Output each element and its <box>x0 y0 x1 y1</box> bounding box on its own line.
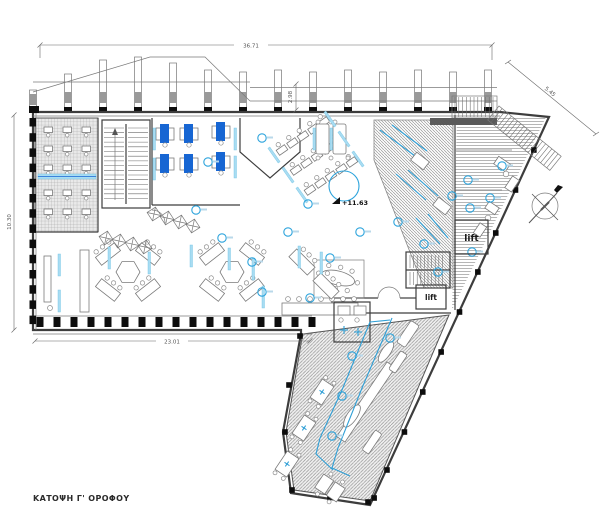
cyan-bar <box>153 158 156 180</box>
chair <box>65 215 69 219</box>
column-square <box>282 429 288 435</box>
column-square <box>309 317 316 327</box>
circle-label-dash <box>267 137 273 139</box>
brace <box>147 207 161 221</box>
column-square <box>365 499 371 505</box>
angled-table <box>289 244 320 275</box>
chair <box>289 162 295 168</box>
workstation <box>273 140 288 155</box>
elevation-value: +11.63 <box>342 199 368 207</box>
pilaster-core <box>100 92 107 103</box>
table <box>199 243 224 266</box>
column-square <box>286 382 292 388</box>
cyan-bar <box>262 286 265 308</box>
dimension-top: 36.71 <box>243 44 259 50</box>
pilaster <box>170 63 177 112</box>
chair <box>84 196 88 200</box>
circle-label-dash <box>347 395 353 397</box>
column-square <box>30 300 37 309</box>
column-square <box>30 255 37 263</box>
desk <box>82 165 91 171</box>
pilaster-core <box>65 92 72 103</box>
chair <box>214 280 220 286</box>
cyan-bar <box>234 156 237 178</box>
chair <box>65 152 69 156</box>
cyan-bar <box>190 245 193 267</box>
chair <box>46 133 50 137</box>
chair <box>84 152 88 156</box>
column-square <box>30 285 37 294</box>
chair <box>345 288 350 293</box>
chair <box>84 133 88 137</box>
column-square <box>30 270 37 279</box>
circle-label-dash <box>475 207 481 209</box>
chair <box>316 156 320 160</box>
chair <box>65 133 69 137</box>
counter <box>44 256 51 302</box>
circle-label-dash <box>495 197 501 199</box>
large-ceiling-circle <box>329 171 359 201</box>
circle-label-dash <box>477 251 483 253</box>
column-square <box>30 194 37 203</box>
hexagon-table <box>116 262 140 283</box>
lift-1-label: lift <box>464 234 479 244</box>
pilaster-core <box>30 94 37 105</box>
door-arc <box>378 287 389 298</box>
chair <box>133 285 139 291</box>
table <box>316 124 329 154</box>
pilaster <box>100 60 107 112</box>
blue-desk <box>184 154 193 173</box>
column-square <box>54 317 61 327</box>
door-arc <box>389 287 400 298</box>
pilaster <box>135 57 142 112</box>
cyan-bar <box>58 254 61 276</box>
column-square <box>173 317 180 327</box>
circle-label-dash <box>315 297 321 299</box>
column-square <box>438 349 444 355</box>
cyan-bar <box>313 128 316 150</box>
chair <box>46 215 50 219</box>
blue-desk-office <box>156 122 230 177</box>
wing-route-line <box>370 320 390 322</box>
desk <box>63 190 72 196</box>
chair <box>346 156 350 160</box>
circle-label-dash <box>293 231 299 233</box>
chair <box>296 128 302 134</box>
circle-label-dash <box>357 355 363 357</box>
column-square <box>289 487 295 493</box>
column-square <box>275 317 282 327</box>
corner-column <box>29 106 39 113</box>
ceiling-circle <box>204 158 212 166</box>
desk <box>44 146 53 152</box>
chair <box>254 244 260 250</box>
column-square <box>122 317 129 327</box>
counter <box>80 250 89 312</box>
circle-label-dash <box>365 231 371 233</box>
chair <box>221 285 227 291</box>
cyan-bar <box>330 128 333 150</box>
blue-desk <box>216 122 225 141</box>
brace <box>173 215 187 229</box>
table <box>354 306 366 315</box>
circle-label-dash <box>473 179 479 181</box>
pilaster <box>345 70 352 112</box>
pilaster <box>205 70 212 112</box>
chair <box>187 173 191 177</box>
desk <box>63 127 72 133</box>
stair-arrow <box>112 128 118 135</box>
column-square <box>30 148 37 157</box>
desk <box>44 127 53 133</box>
chair <box>503 171 509 177</box>
circle-label-dash <box>443 271 449 273</box>
circle-label-dash <box>227 237 233 239</box>
desk <box>82 146 91 152</box>
pilaster <box>275 70 282 112</box>
stair-tread <box>541 149 552 163</box>
chair <box>326 263 331 268</box>
ceiling-circle <box>192 206 200 214</box>
blue-desk <box>160 154 169 173</box>
circle-label-dash <box>429 243 435 245</box>
workstation <box>301 180 316 195</box>
column-square <box>88 317 95 327</box>
workstation-rows <box>273 112 358 195</box>
chair <box>349 269 354 274</box>
stair-tread <box>537 146 548 160</box>
pilaster-core <box>135 92 142 103</box>
cyan-bar <box>320 252 323 274</box>
ceiling-circle <box>258 134 266 142</box>
column-square <box>258 317 265 327</box>
chair <box>197 249 203 255</box>
column-square <box>402 429 408 435</box>
column-square <box>190 317 197 327</box>
chair <box>355 318 359 322</box>
column-square <box>156 317 163 327</box>
chair <box>203 244 209 250</box>
workstation <box>287 160 302 175</box>
cyan-bar <box>108 247 111 269</box>
circle-label-dash <box>507 165 513 167</box>
circle-label-dash <box>213 161 219 163</box>
desk <box>44 209 53 215</box>
circle-label-dash <box>403 221 409 223</box>
table <box>289 249 315 275</box>
column-square <box>371 495 377 501</box>
chair <box>187 143 191 147</box>
cyan-bar <box>252 258 255 280</box>
north-arrow-icon <box>529 185 563 223</box>
chair <box>157 249 163 255</box>
column-square <box>139 317 146 327</box>
desk <box>44 190 53 196</box>
floor-plan-canvas: lift lift +11.63 36.71 23.01 10.30 <box>0 0 600 532</box>
chair <box>339 318 343 322</box>
column-square <box>224 317 231 327</box>
chair <box>46 196 50 200</box>
ceiling-circle <box>356 228 364 236</box>
right-wing-floor <box>452 117 546 310</box>
desk <box>82 209 91 215</box>
chair <box>219 171 223 175</box>
desk <box>63 165 72 171</box>
chair <box>307 121 313 127</box>
column-square <box>30 133 37 142</box>
desk <box>63 209 72 215</box>
column-square <box>292 317 299 327</box>
chair <box>335 161 341 167</box>
brace <box>186 219 200 233</box>
chair <box>261 249 267 255</box>
table <box>338 306 350 315</box>
table <box>239 279 264 302</box>
chair <box>46 152 50 156</box>
desk <box>82 127 91 133</box>
pilaster-core <box>205 92 212 103</box>
chair <box>312 257 318 263</box>
ceiling-circle <box>326 254 334 262</box>
chair <box>237 285 243 291</box>
chair <box>275 142 281 148</box>
hexagon-table <box>220 262 244 283</box>
x-brace-panel <box>173 215 187 229</box>
column-square <box>105 317 112 327</box>
circle-label-dash <box>335 257 341 259</box>
x-brace-panel <box>147 207 161 221</box>
chair <box>84 215 88 219</box>
desk <box>82 190 91 196</box>
desk <box>63 146 72 152</box>
x-brace-panel <box>160 211 174 225</box>
chair <box>308 297 313 302</box>
column-square <box>241 317 248 327</box>
column-square <box>30 224 37 233</box>
column-square <box>420 389 426 395</box>
chair <box>219 141 223 145</box>
brace <box>160 211 174 225</box>
circle-label-dash <box>313 203 319 205</box>
chair <box>163 143 167 147</box>
column-square <box>71 317 78 327</box>
ceiling-circle <box>218 234 226 242</box>
ceiling-circle <box>304 200 312 208</box>
column-square <box>475 269 481 275</box>
chair <box>329 156 333 160</box>
column-square <box>30 209 37 218</box>
chair <box>297 297 302 302</box>
chair <box>355 280 360 285</box>
x-brace-panel <box>186 219 200 233</box>
chair <box>286 297 291 302</box>
column-square <box>30 118 37 127</box>
table <box>199 279 224 302</box>
chair <box>352 297 357 302</box>
dimension-right-upper: 2.98 <box>288 90 294 103</box>
circle-label-dash <box>457 195 463 197</box>
column-square <box>297 333 303 339</box>
ceiling-circle <box>284 228 292 236</box>
chair <box>303 182 309 188</box>
pilaster-core <box>170 92 177 103</box>
wall-band <box>430 118 497 125</box>
circle-label-dash <box>201 209 207 211</box>
cyan-bar <box>298 246 301 268</box>
column-square <box>30 179 37 188</box>
chair <box>248 239 254 245</box>
chair <box>300 155 306 161</box>
pilaster-core <box>240 92 247 103</box>
chair <box>208 275 214 281</box>
table <box>95 279 120 302</box>
chair <box>139 280 145 286</box>
chair <box>286 135 292 141</box>
circle-label-dash <box>337 435 343 437</box>
trapezoid-table <box>92 238 121 266</box>
cyan-bar <box>228 248 231 270</box>
chair <box>324 168 330 174</box>
column-square <box>30 316 37 325</box>
stair-tread <box>547 154 558 168</box>
drawing-title: ΚΑΤΟΨΗ Γ' ΟΡΟΦΟΥ <box>33 494 130 503</box>
column-square <box>384 467 390 473</box>
chair <box>300 246 306 252</box>
chair <box>338 265 343 270</box>
chair <box>210 239 216 245</box>
elevation-marker: +11.63 <box>332 197 368 207</box>
chair <box>117 285 123 291</box>
desk <box>44 165 53 171</box>
pilaster <box>415 70 422 112</box>
cyan-bar <box>58 290 61 312</box>
circle-label-dash <box>257 261 263 263</box>
column-square <box>30 240 37 249</box>
chair <box>243 280 249 286</box>
chair <box>93 249 99 255</box>
table <box>135 279 160 302</box>
blue-desk <box>160 124 169 143</box>
column-square <box>207 317 214 327</box>
chair <box>146 275 152 281</box>
lift-2: lift <box>416 285 446 309</box>
chair <box>314 175 320 181</box>
chair <box>341 297 346 302</box>
column-square <box>30 164 37 173</box>
chair <box>104 275 110 281</box>
column-square <box>493 230 499 236</box>
chair <box>317 114 323 120</box>
column-square <box>457 309 463 315</box>
cyan-bar <box>153 128 156 150</box>
circle-label-dash <box>267 291 273 293</box>
dimension-left: 10.30 <box>7 214 13 230</box>
cyan-bar <box>148 252 151 274</box>
chair <box>306 252 312 258</box>
circle-label-dash <box>395 337 401 339</box>
chair <box>110 280 116 286</box>
chair <box>163 173 167 177</box>
upper-colonnade <box>29 57 492 113</box>
column-square <box>37 317 44 327</box>
lift-2-label: lift <box>425 293 437 302</box>
chair <box>316 120 320 124</box>
chair <box>48 306 53 311</box>
blue-desk <box>184 124 193 143</box>
chair <box>65 196 69 200</box>
stair-tread <box>544 151 555 165</box>
cyan-bar <box>234 128 237 150</box>
dimension-bottom: 23.01 <box>164 340 180 346</box>
